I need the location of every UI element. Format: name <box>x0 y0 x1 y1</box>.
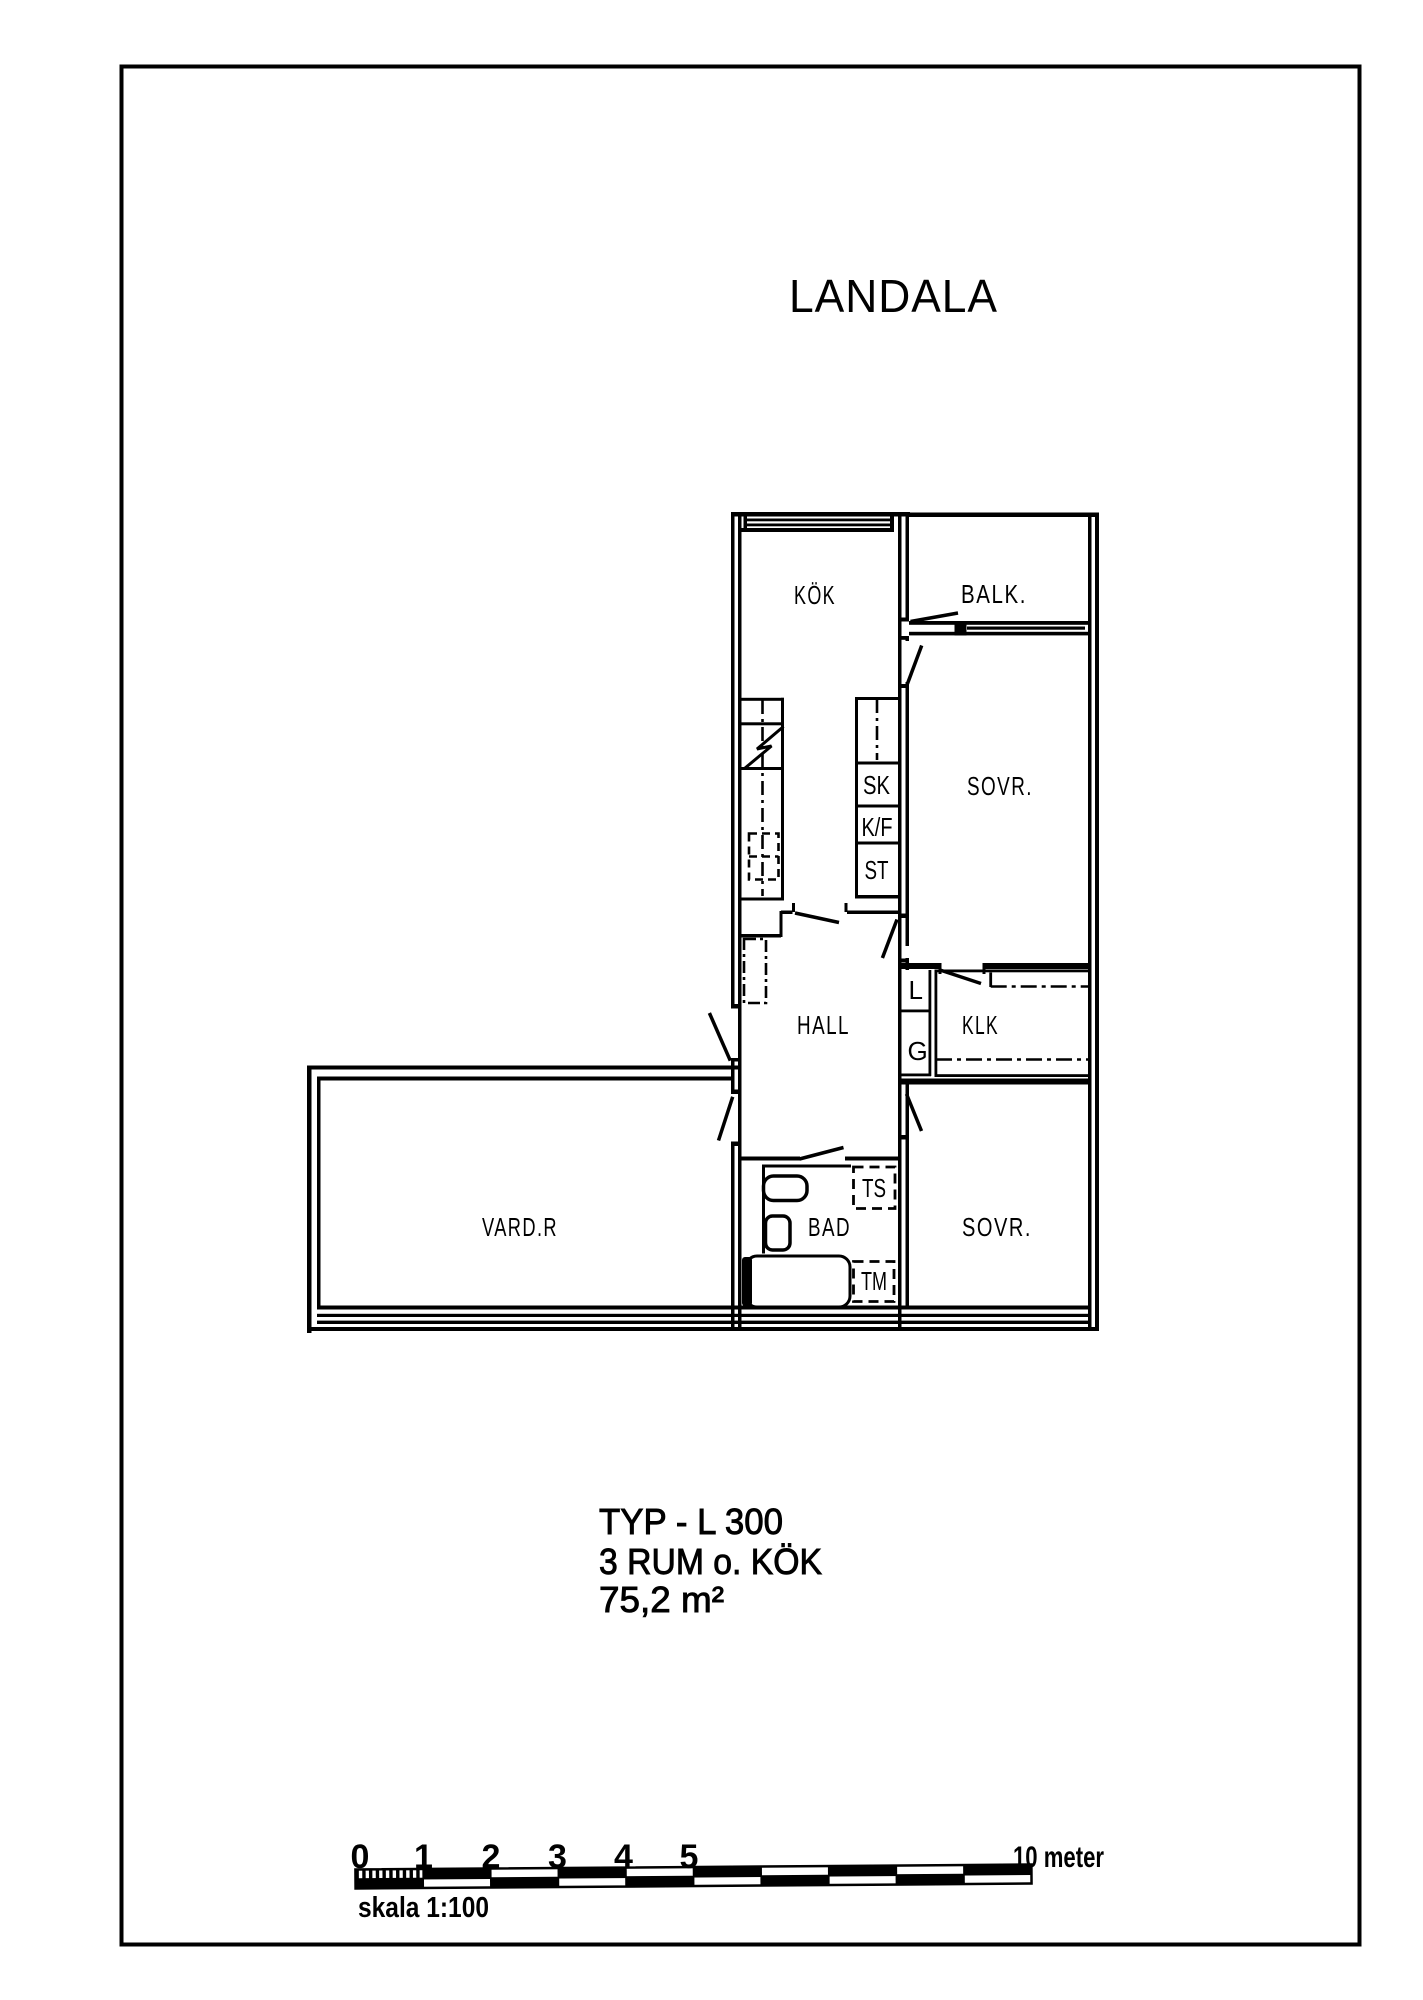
svg-text:skala 1:100: skala 1:100 <box>358 1892 489 1924</box>
svg-text:LANDALA: LANDALA <box>789 270 998 322</box>
svg-text:KÖK: KÖK <box>794 580 836 610</box>
svg-text:TYP - L 300: TYP - L 300 <box>599 1501 783 1542</box>
svg-text:75,2 m²: 75,2 m² <box>599 1579 724 1620</box>
svg-text:BAD: BAD <box>808 1212 851 1242</box>
svg-text:HALL: HALL <box>797 1010 850 1040</box>
svg-text:ST: ST <box>865 855 889 885</box>
svg-text:SK: SK <box>863 770 891 800</box>
svg-text:SOVR.: SOVR. <box>967 771 1033 801</box>
svg-text:TS: TS <box>862 1173 886 1203</box>
svg-text:VARD.R: VARD.R <box>482 1212 558 1242</box>
svg-text:SOVR.: SOVR. <box>962 1212 1032 1242</box>
svg-text:K/F: K/F <box>862 812 893 842</box>
svg-text:TM: TM <box>861 1266 887 1296</box>
svg-text:G: G <box>908 1036 928 1066</box>
svg-text:3 RUM o. KÖK: 3 RUM o. KÖK <box>599 1541 822 1582</box>
svg-text:KLK: KLK <box>962 1010 999 1040</box>
svg-text:BALK.: BALK. <box>961 579 1027 609</box>
svg-text:L: L <box>909 975 923 1005</box>
